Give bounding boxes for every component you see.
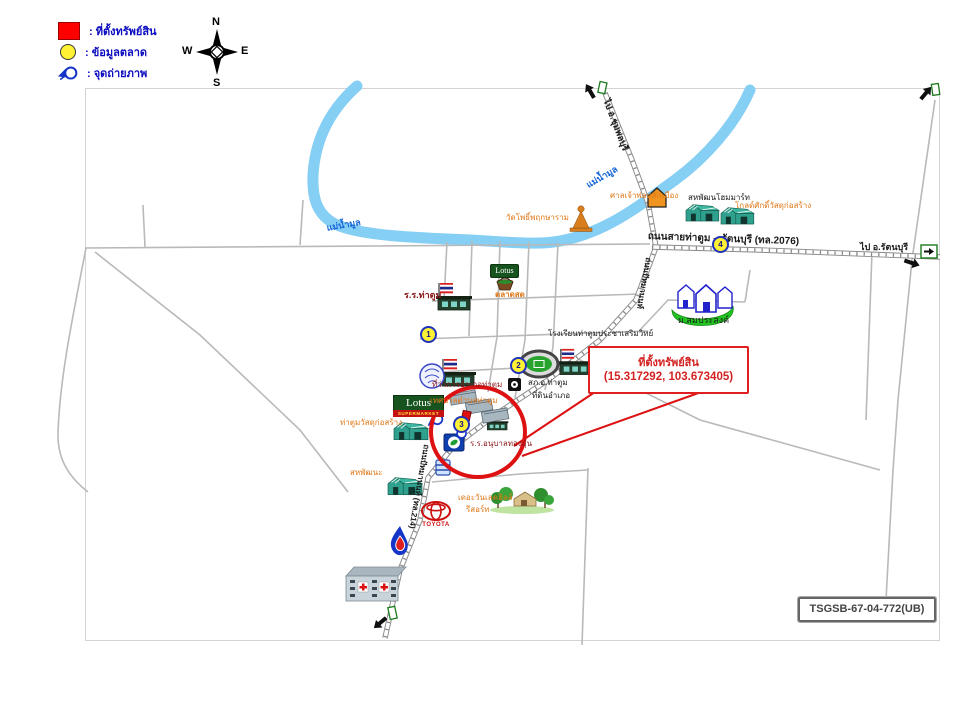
market-marker-2: 2 xyxy=(510,357,527,374)
market-marker-4: 4 xyxy=(712,236,729,253)
market-marker-1: 1 xyxy=(420,326,437,343)
property-callout: ที่ตั้งทรัพย์สิน (15.317292, 103.673405) xyxy=(588,346,749,394)
map-page: : ที่ตั้งทรัพย์สิน : ข้อมูลตลาด : จุดถ่า… xyxy=(0,0,960,720)
callout-coords: (15.317292, 103.673405) xyxy=(590,371,747,383)
callout-title: ที่ตั้งทรัพย์สิน xyxy=(590,353,747,371)
market-marker-3: 3 xyxy=(453,416,470,433)
reference-code-box: TSGSB-67-04-772(UB) xyxy=(798,597,936,622)
